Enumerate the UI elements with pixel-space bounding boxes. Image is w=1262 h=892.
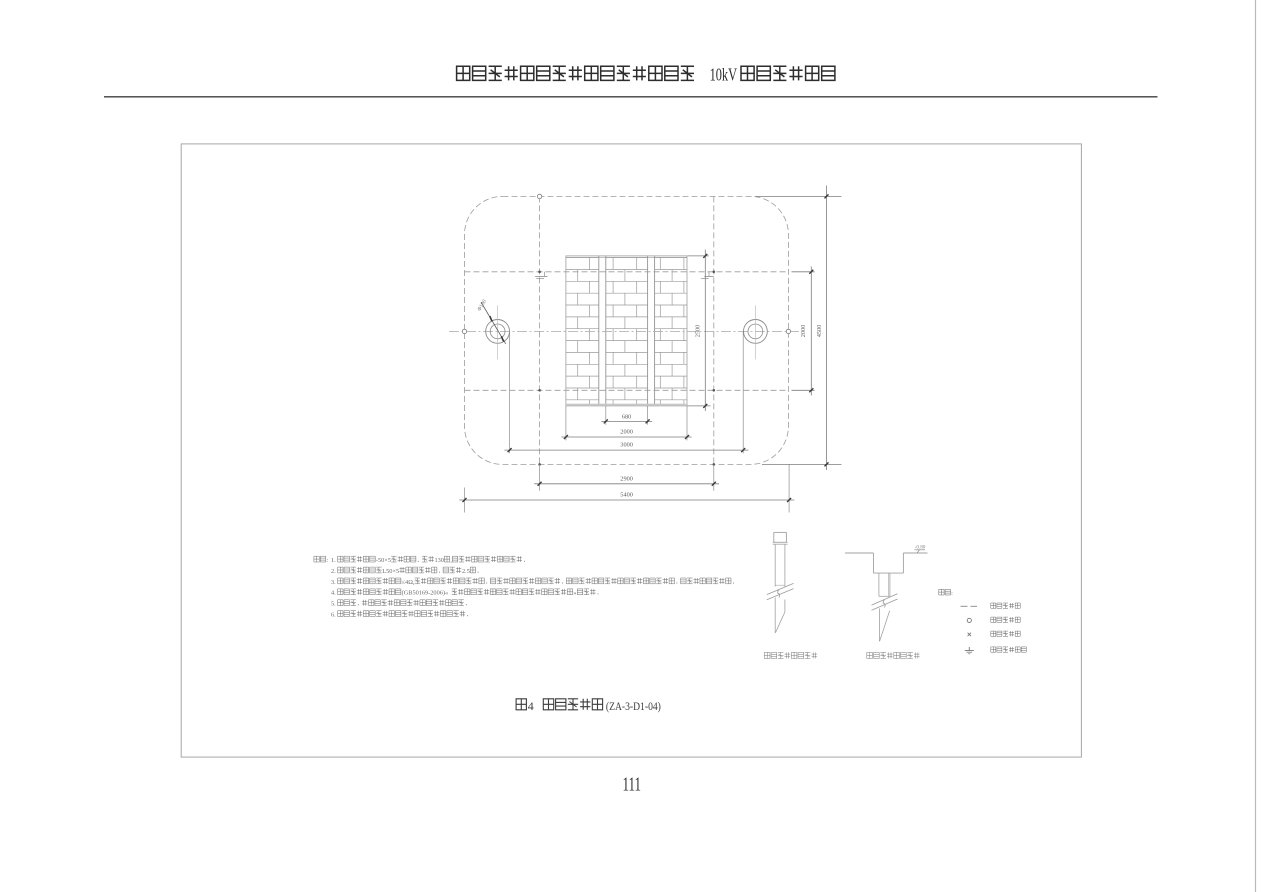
svg-text:6.: 6. [331, 612, 336, 619]
svg-text:-50×5: -50×5 [376, 557, 391, 564]
svg-text:2000: 2000 [620, 429, 633, 436]
svg-text::: : [327, 557, 329, 564]
svg-text:L50×5: L50×5 [382, 568, 399, 575]
svg-text:5.: 5. [331, 601, 336, 608]
svg-text:2500: 2500 [695, 325, 702, 338]
svg-text:130: 130 [435, 557, 444, 564]
svg-text:2900: 2900 [620, 476, 633, 483]
svg-text:1.: 1. [331, 557, 336, 564]
svg-text:≤4Ω,: ≤4Ω, [402, 579, 415, 586]
svg-text:10kV: 10kV [710, 65, 738, 85]
svg-text::: : [951, 590, 953, 597]
svg-text:111: 111 [623, 774, 642, 796]
svg-text:3000: 3000 [620, 442, 633, 449]
svg-text:4: 4 [528, 699, 534, 713]
svg-text:4500: 4500 [816, 325, 823, 338]
svg-text:(ZA-3-D1-04): (ZA-3-D1-04) [606, 699, 661, 713]
svg-text:»: » [573, 590, 576, 597]
svg-text:3.: 3. [331, 579, 336, 586]
svg-text:680: 680 [622, 413, 631, 420]
svg-text:2.: 2. [331, 568, 336, 575]
svg-text:2.5: 2.5 [462, 568, 470, 575]
svg-text:4.: 4. [331, 590, 336, 597]
svg-text:5400: 5400 [620, 491, 633, 498]
svg-text:2000: 2000 [800, 325, 807, 338]
svg-text:(GB50169-2006)«: (GB50169-2006)« [402, 590, 449, 597]
